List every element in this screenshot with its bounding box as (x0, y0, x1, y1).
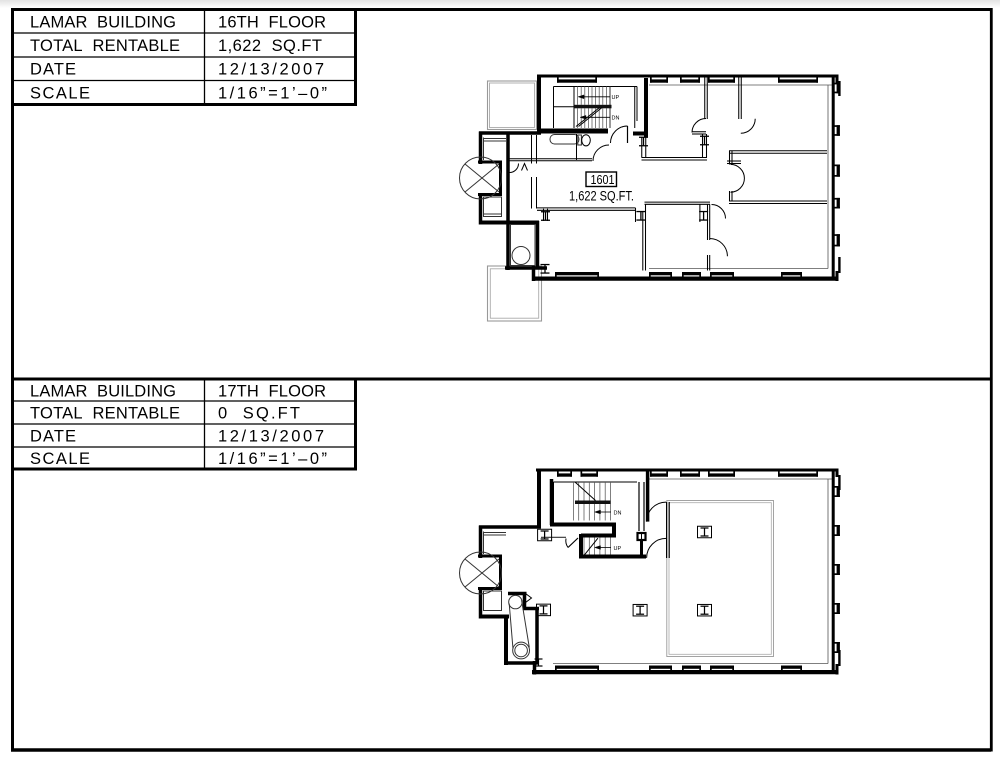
svg-text:UP: UP (612, 95, 620, 101)
svg-text:1/16”=1’–0”: 1/16”=1’–0” (218, 450, 327, 468)
svg-text:TOTAL RENTABLE: TOTAL RENTABLE (30, 404, 180, 422)
svg-text:TOTAL RENTABLE: TOTAL RENTABLE (30, 37, 180, 55)
svg-text:UP: UP (614, 546, 622, 552)
svg-text:SCALE: SCALE (30, 84, 90, 102)
svg-text:1,622 SQ.FT: 1,622 SQ.FT (218, 37, 322, 55)
svg-text:12/13/2007: 12/13/2007 (218, 61, 324, 79)
svg-text:12/13/2007: 12/13/2007 (218, 427, 324, 445)
svg-text:0 SQ.FT: 0 SQ.FT (218, 404, 300, 422)
svg-text:DN: DN (612, 115, 620, 121)
svg-text:1,622 SQ.FT.: 1,622 SQ.FT. (569, 189, 634, 204)
svg-text:16TH FLOOR: 16TH FLOOR (218, 14, 326, 32)
svg-text:DATE: DATE (30, 61, 76, 79)
svg-text:DN: DN (614, 510, 622, 516)
svg-text:LAMAR BUILDING: LAMAR BUILDING (30, 14, 176, 32)
svg-text:LAMAR BUILDING: LAMAR BUILDING (30, 383, 176, 401)
svg-text:SCALE: SCALE (30, 450, 90, 468)
svg-text:1601: 1601 (591, 172, 615, 187)
svg-text:DATE: DATE (30, 427, 76, 445)
svg-text:17TH FLOOR: 17TH FLOOR (218, 383, 326, 401)
svg-text:1/16”=1’–0”: 1/16”=1’–0” (218, 84, 327, 102)
